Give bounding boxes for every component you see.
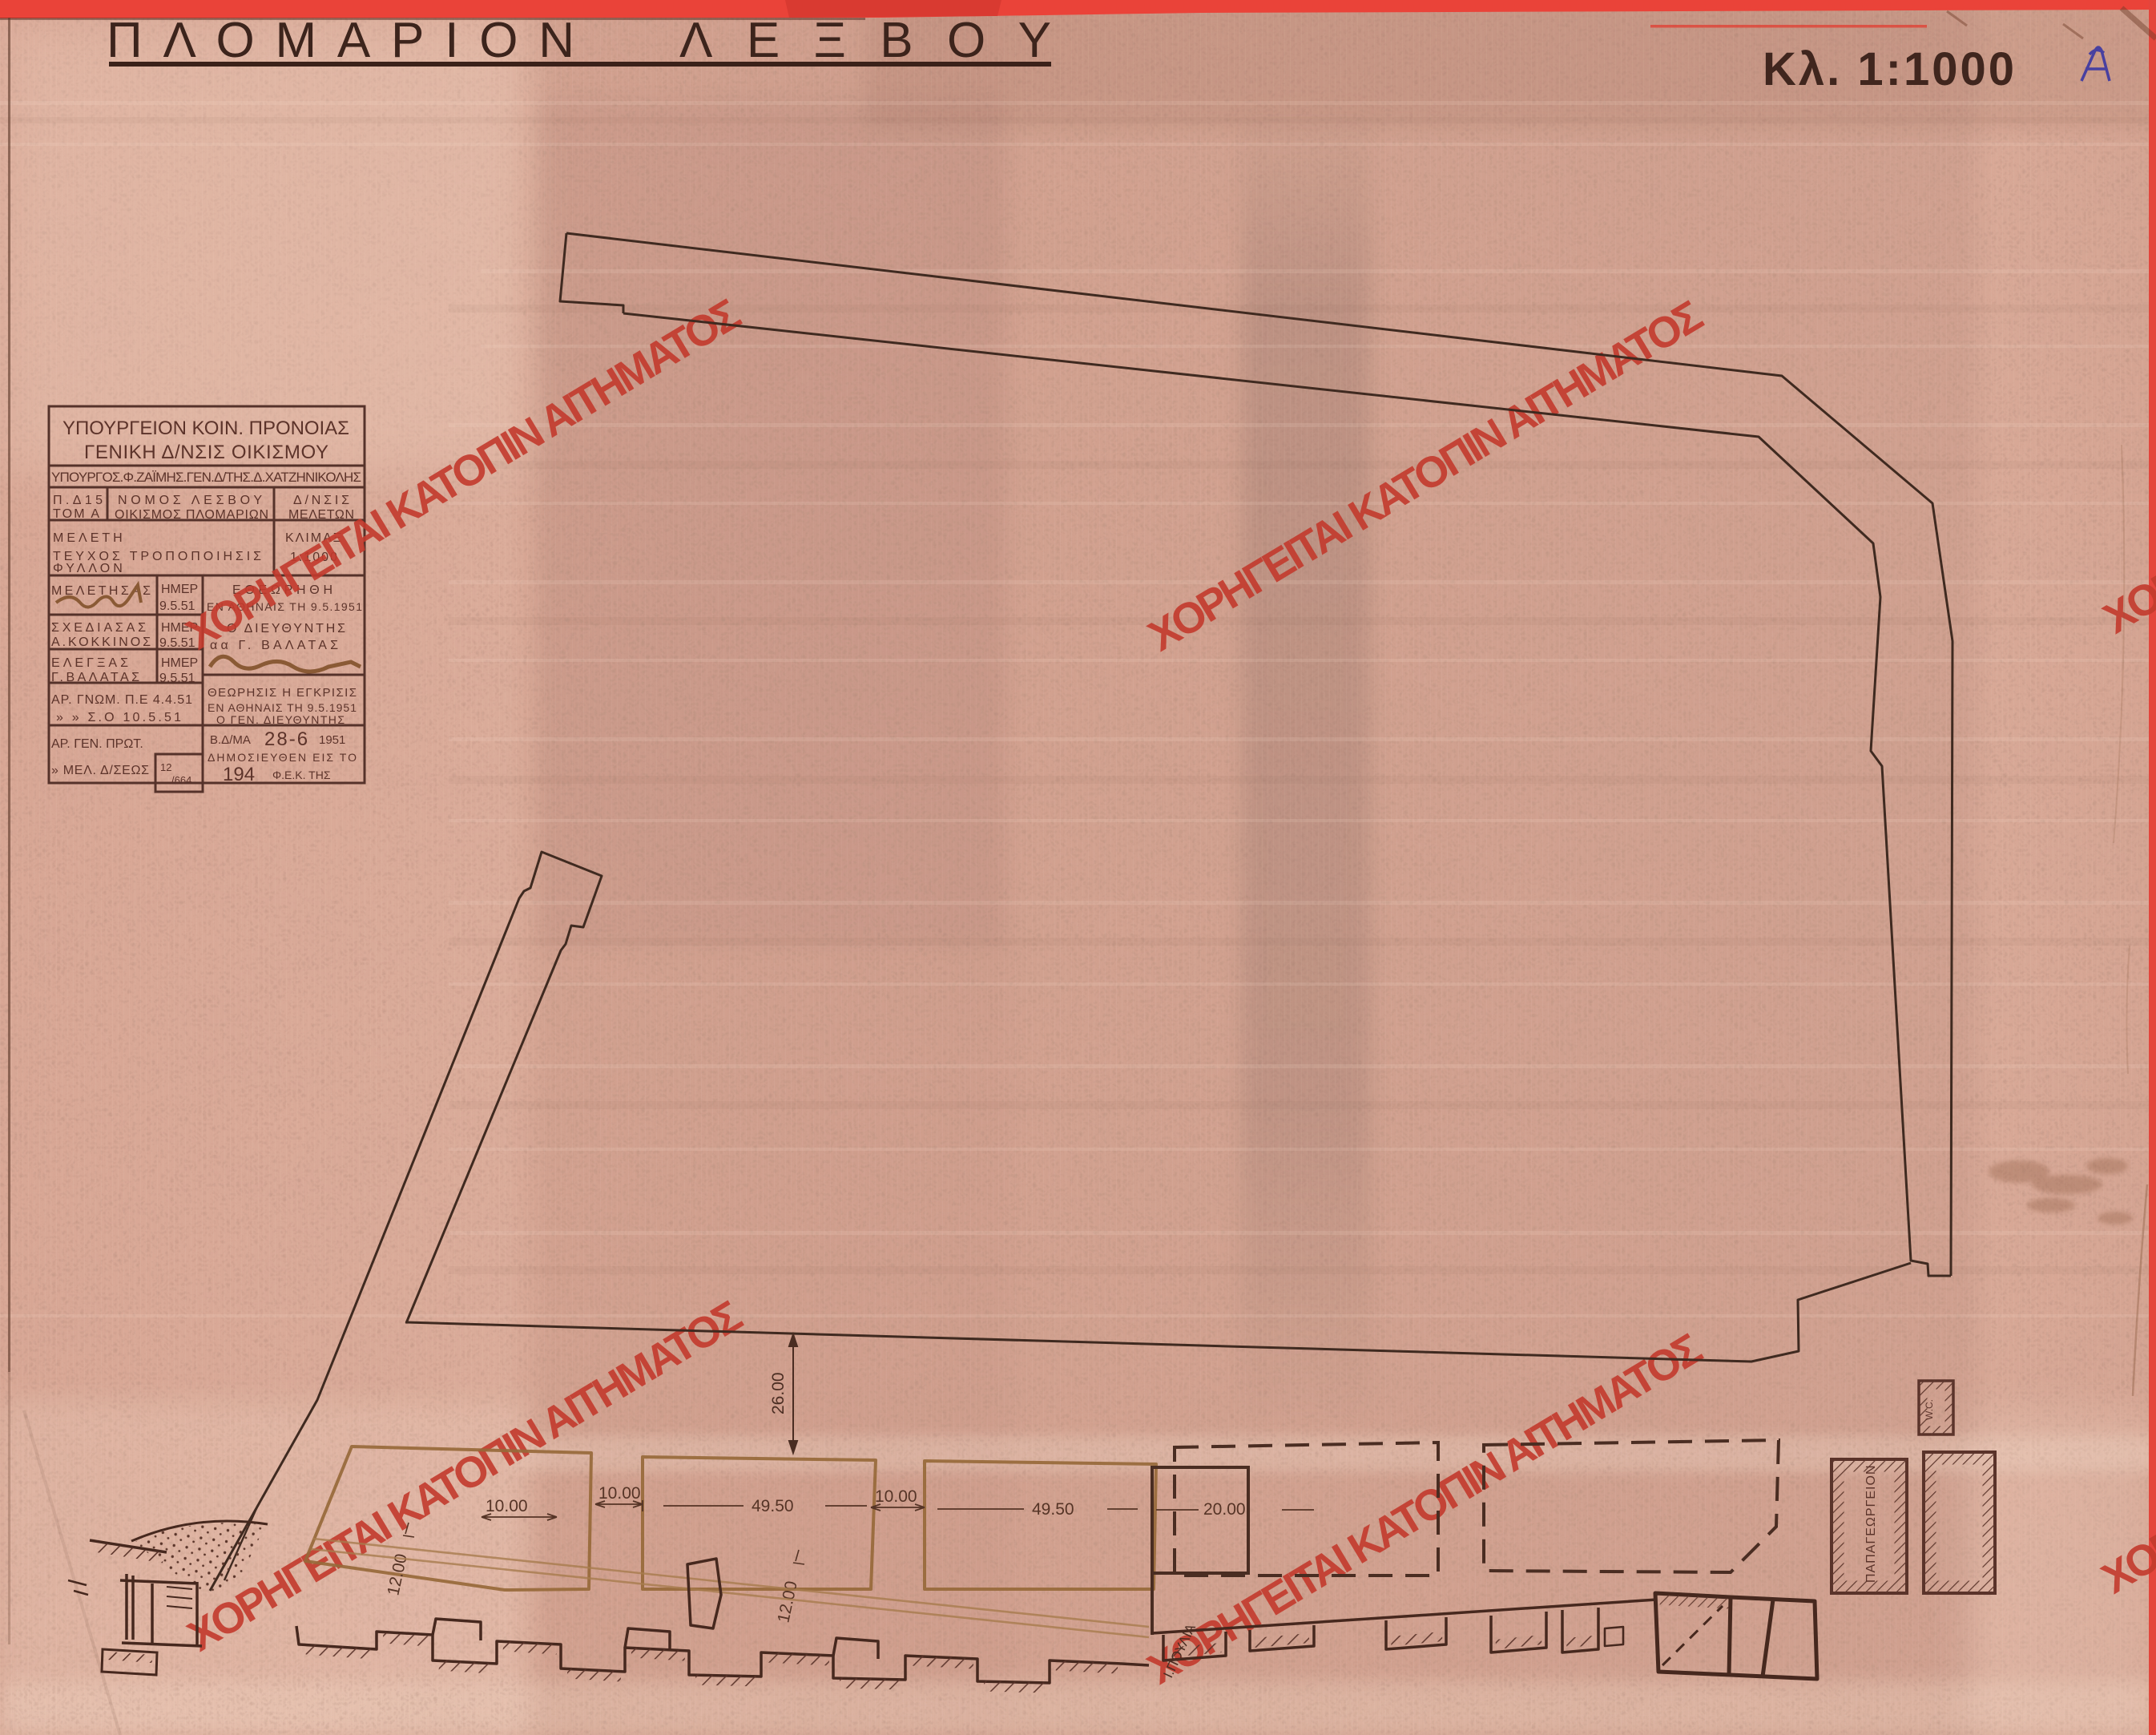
svg-text:ΗΜΕΡ: ΗΜΕΡ — [161, 656, 198, 670]
svg-text:10.00: 10.00 — [598, 1484, 641, 1503]
svg-text:26.00: 26.00 — [769, 1372, 788, 1414]
svg-text:W.C.: W.C. — [1924, 1399, 1935, 1420]
svg-text:ΗΜΕΡ: ΗΜΕΡ — [161, 583, 198, 596]
svg-text:ΕΝ ΑΘΗΝΑΙΣ ΤΗ 9.5.1951: ΕΝ ΑΘΗΝΑΙΣ ΤΗ 9.5.1951 — [208, 701, 357, 714]
svg-text:10.00: 10.00 — [486, 1497, 528, 1515]
svg-text:ΣΧΕΔΙΑΣΑΣ: ΣΧΕΔΙΑΣΑΣ — [51, 621, 146, 635]
svg-text:ΔΗΜΟΣΙΕΥΘΕΝ ΕΙΣ ΤΟ: ΔΗΜΟΣΙΕΥΘΕΝ ΕΙΣ ΤΟ — [208, 751, 357, 764]
svg-text:» ΜΕΛ. Δ/ΣΕΩΣ: » ΜΕΛ. Δ/ΣΕΩΣ — [51, 764, 149, 777]
svg-text:Ο ΓΕΝ. ΔΙΕΥΘΥΝΤΗΣ: Ο ΓΕΝ. ΔΙΕΥΘΥΝΤΗΣ — [216, 713, 345, 726]
svg-text:ΥΠΟΥΡΓΟΣ.Φ.ΖΑΪΜΗΣ.ΓΕΝ.Δ/ΤΗΣ.Δ.: ΥΠΟΥΡΓΟΣ.Φ.ΖΑΪΜΗΣ.ΓΕΝ.Δ/ΤΗΣ.Δ.ΧΑΤΖΗΝΙΚΟΛ… — [51, 470, 361, 485]
svg-text:12: 12 — [160, 761, 171, 773]
svg-text:ΕΛΕΓΞΑΣ: ΕΛΕΓΞΑΣ — [51, 656, 128, 670]
svg-text:Κλ. 1:1000: Κλ. 1:1000 — [1763, 43, 2017, 95]
svg-text:ΠΛΟΜΑΡΙΟΝ: ΠΛΟΜΑΡΙΟΝ — [107, 13, 574, 68]
svg-text:9.5.51: 9.5.51 — [159, 672, 195, 685]
svg-text:ΦΥΛΛΟΝ: ΦΥΛΛΟΝ — [53, 562, 126, 575]
svg-text:194: 194 — [223, 764, 255, 785]
svg-text:10.00: 10.00 — [875, 1487, 917, 1506]
svg-text:20.00: 20.00 — [1203, 1500, 1246, 1519]
svg-text:ΤΟΜ Α: ΤΟΜ Α — [53, 507, 99, 521]
svg-text:ΟΙΚΙΣΜΟΣ ΠΛΟΜΑΡΙΩΝ: ΟΙΚΙΣΜΟΣ ΠΛΟΜΑΡΙΩΝ — [115, 508, 268, 522]
svg-text:49.50: 49.50 — [1032, 1500, 1074, 1519]
svg-text:ΜΕΛΕΤΗ: ΜΕΛΕΤΗ — [53, 531, 126, 545]
svg-text:/664: /664 — [171, 774, 191, 786]
svg-text:ΥΠΟΥΡΓΕΙΟΝ ΚΟΙΝ. ΠΡΟΝΟΙΑΣ: ΥΠΟΥΡΓΕΙΟΝ ΚΟΙΝ. ΠΡΟΝΟΙΑΣ — [62, 418, 349, 439]
svg-text:1951: 1951 — [319, 733, 345, 747]
svg-text:28-6: 28-6 — [264, 728, 309, 750]
svg-text:ΘΕΩΡΗΣΙΣ Η ΕΓΚΡΙΣΙΣ: ΘΕΩΡΗΣΙΣ Η ΕΓΚΡΙΣΙΣ — [208, 686, 357, 700]
svg-text:ΑΡ. ΓΝΩΜ. Π.Ε 4.4.51: ΑΡ. ΓΝΩΜ. Π.Ε 4.4.51 — [51, 693, 192, 707]
svg-text:49.50: 49.50 — [752, 1497, 794, 1515]
svg-text:Φ.Ε.Κ. ΤΗΣ: Φ.Ε.Κ. ΤΗΣ — [272, 769, 331, 781]
svg-text:ΓΕΝΙΚΗ Δ/ΝΣΙΣ ΟΙΚΙΣΜΟΥ: ΓΕΝΙΚΗ Δ/ΝΣΙΣ ΟΙΚΙΣΜΟΥ — [84, 442, 328, 463]
svg-text:ΠΑΠΑΓΕΩΡΓΕΙΟΝ: ΠΑΠΑΓΕΩΡΓΕΙΟΝ — [1864, 1465, 1878, 1584]
svg-text:ΑΡ. ΓΕΝ. ΠΡΩΤ.: ΑΡ. ΓΕΝ. ΠΡΩΤ. — [51, 737, 143, 751]
svg-text:Β.Δ/ΜΑ: Β.Δ/ΜΑ — [210, 733, 251, 747]
svg-text:Π.Δ15: Π.Δ15 — [53, 494, 103, 507]
